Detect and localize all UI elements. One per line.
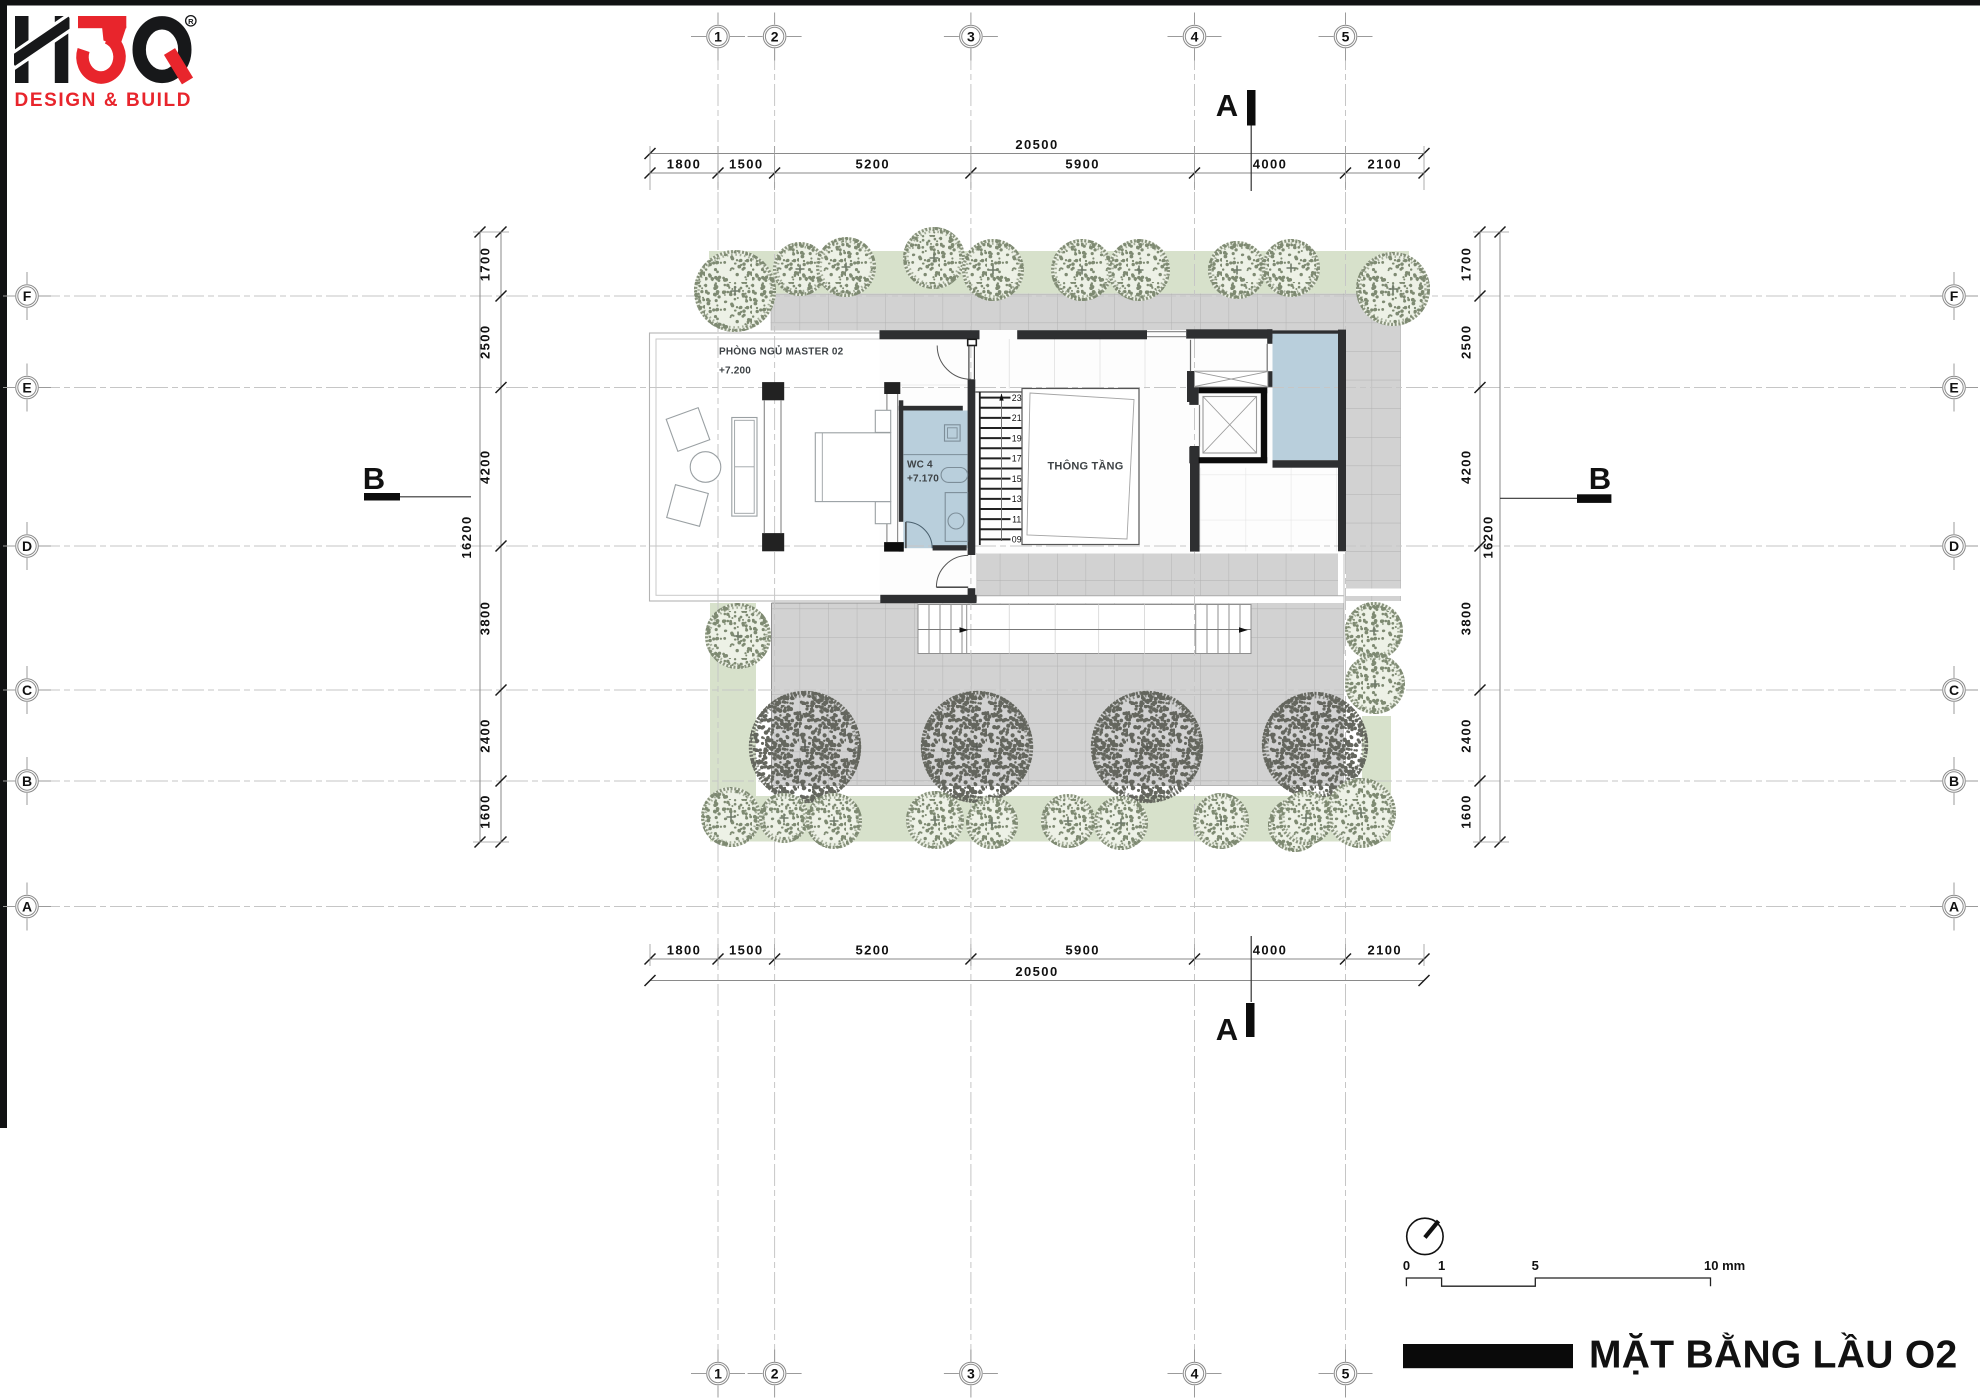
svg-text:2400: 2400 [478, 718, 493, 753]
svg-text:A: A [1949, 898, 1959, 914]
svg-text:+7.200: +7.200 [719, 366, 751, 377]
svg-text:B: B [1589, 461, 1611, 496]
svg-text:11: 11 [1012, 514, 1021, 524]
svg-text:D: D [22, 538, 32, 554]
svg-text:4200: 4200 [478, 449, 493, 484]
svg-text:2: 2 [771, 1365, 779, 1381]
svg-text:5200: 5200 [855, 943, 890, 958]
svg-text:4000: 4000 [1253, 157, 1288, 172]
svg-text:5: 5 [1342, 1365, 1350, 1381]
svg-text:1800: 1800 [667, 943, 702, 958]
svg-text:2400: 2400 [1459, 718, 1474, 753]
svg-text:3: 3 [967, 28, 975, 44]
svg-text:15: 15 [1012, 474, 1022, 484]
svg-text:F: F [23, 288, 32, 304]
svg-text:DESIGN & BUILD: DESIGN & BUILD [15, 90, 193, 111]
svg-text:2100: 2100 [1367, 943, 1402, 958]
svg-text:21: 21 [1012, 413, 1022, 423]
svg-text:WC 4: WC 4 [907, 460, 933, 471]
svg-text:16200: 16200 [459, 515, 474, 558]
svg-text:D: D [1949, 538, 1959, 554]
svg-text:09: 09 [1012, 535, 1022, 545]
svg-text:1700: 1700 [478, 247, 493, 282]
svg-text:A: A [1216, 88, 1238, 123]
svg-text:17: 17 [1012, 454, 1022, 464]
svg-text:0: 0 [1403, 1258, 1410, 1273]
svg-text:2: 2 [771, 28, 779, 44]
svg-text:2500: 2500 [478, 324, 493, 359]
svg-text:3800: 3800 [1459, 601, 1474, 636]
svg-text:A: A [22, 898, 32, 914]
svg-text:3800: 3800 [478, 601, 493, 636]
svg-text:1: 1 [714, 1365, 722, 1381]
svg-text:20500: 20500 [1015, 964, 1058, 979]
svg-text:4000: 4000 [1253, 943, 1288, 958]
svg-text:F: F [1950, 288, 1959, 304]
svg-text:B: B [363, 461, 385, 496]
svg-text:C: C [1949, 682, 1959, 698]
svg-text:1800: 1800 [667, 157, 702, 172]
svg-text:5900: 5900 [1065, 943, 1100, 958]
svg-text:PHÒNG NGỦ MASTER 02: PHÒNG NGỦ MASTER 02 [719, 345, 844, 358]
svg-text:20500: 20500 [1015, 137, 1058, 152]
svg-text:10 mm: 10 mm [1704, 1258, 1745, 1273]
svg-text:3: 3 [967, 1365, 975, 1381]
svg-text:2500: 2500 [1459, 324, 1474, 359]
svg-text:1: 1 [1438, 1258, 1445, 1273]
svg-text:1500: 1500 [729, 157, 764, 172]
svg-text:E: E [1949, 379, 1958, 395]
svg-text:1500: 1500 [729, 943, 764, 958]
svg-text:4: 4 [1191, 28, 1199, 44]
svg-text:R: R [188, 17, 194, 26]
svg-text:C: C [22, 682, 32, 698]
svg-text:5200: 5200 [855, 157, 890, 172]
svg-text:+7.170: +7.170 [907, 474, 939, 485]
svg-text:2100: 2100 [1367, 157, 1402, 172]
svg-text:4: 4 [1191, 1365, 1199, 1381]
svg-text:16200: 16200 [1481, 515, 1496, 558]
svg-text:19: 19 [1012, 433, 1022, 443]
svg-text:5900: 5900 [1065, 157, 1100, 172]
svg-text:THÔNG TẦNG: THÔNG TẦNG [1048, 460, 1124, 473]
svg-text:23: 23 [1012, 393, 1022, 403]
svg-text:B: B [22, 773, 32, 789]
svg-text:1600: 1600 [478, 794, 493, 829]
svg-text:MẶT BẰNG LẦU O2: MẶT BẰNG LẦU O2 [1589, 1333, 1958, 1377]
svg-text:5: 5 [1342, 28, 1350, 44]
svg-text:5: 5 [1532, 1258, 1539, 1273]
svg-text:13: 13 [1012, 494, 1022, 504]
svg-text:1: 1 [714, 28, 722, 44]
svg-text:E: E [22, 379, 31, 395]
svg-text:1600: 1600 [1459, 794, 1474, 829]
svg-text:B: B [1949, 773, 1959, 789]
svg-text:1700: 1700 [1459, 247, 1474, 282]
svg-text:A: A [1216, 1012, 1238, 1047]
svg-text:4200: 4200 [1459, 449, 1474, 484]
